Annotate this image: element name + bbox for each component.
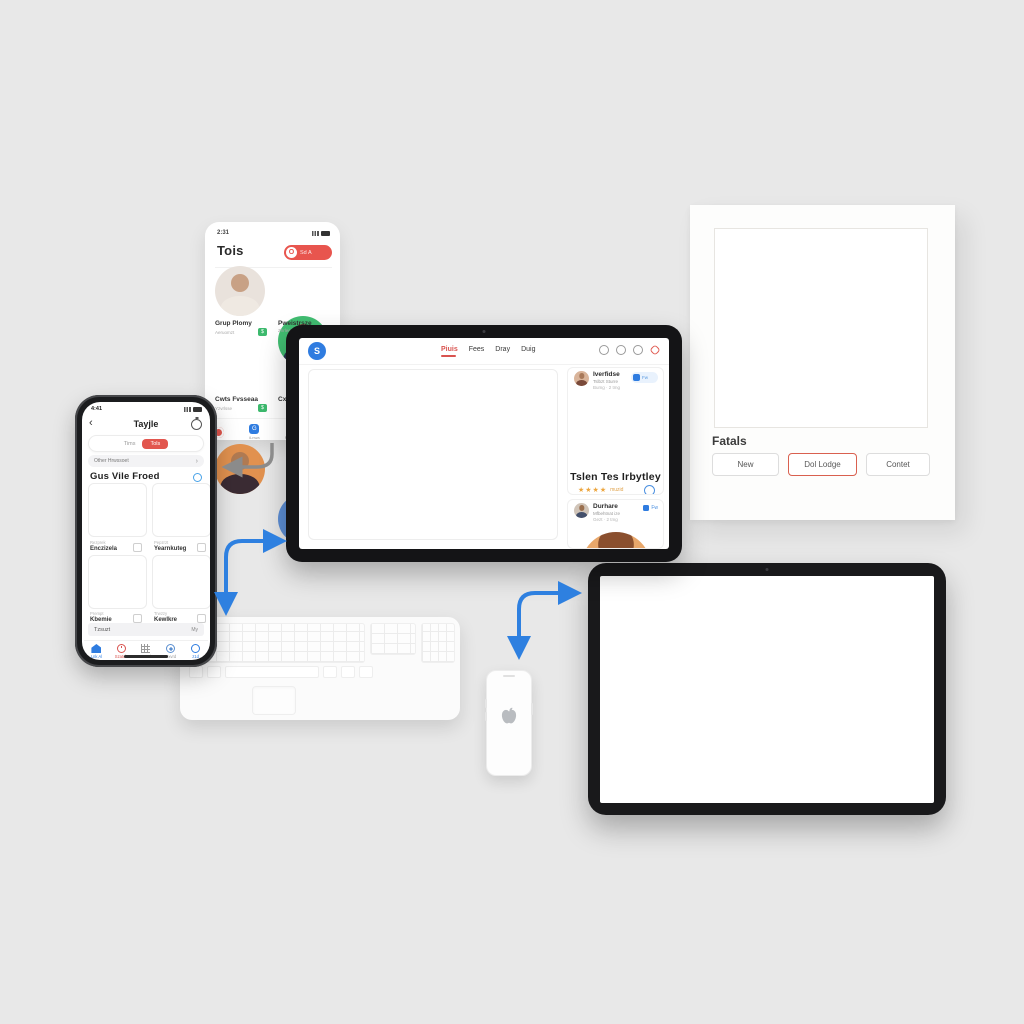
- chevron-right-icon: ›: [196, 458, 198, 465]
- image-placeholder: [714, 228, 928, 428]
- star-rating-icon: ★★★★: [578, 486, 607, 494]
- new-button[interactable]: New: [712, 453, 779, 476]
- add-contact-label: Sd A: [300, 250, 312, 256]
- design-flow-collage: 2:31 Tois O Sd A Grup Plomy Aeruomzt $ P…: [0, 0, 1024, 1024]
- chat-icon: G: [249, 424, 259, 434]
- list-row-label: Other Hrwssoet: [94, 458, 129, 464]
- tablet-toolbar-icons: [599, 345, 660, 355]
- money-badge-icon: $: [258, 328, 267, 336]
- clock-icon: [117, 644, 126, 653]
- status-icons: [312, 231, 330, 236]
- battery-icon: [321, 231, 330, 236]
- record-icon: O: [286, 247, 297, 258]
- contact-cell-3[interactable]: Cwts Fvsseaa Yzvrlsse $: [215, 396, 267, 412]
- grid-card-2[interactable]: [152, 483, 210, 537]
- sidebar-profile-card: Durhare Mfbehtnat ize Gezt · 2 tmg Fw: [567, 499, 664, 549]
- signal-icon: [184, 407, 191, 412]
- footer-action: My: [191, 627, 198, 633]
- grid-icon: [141, 644, 150, 653]
- partial-avatar: [581, 532, 651, 549]
- spacebar-key[interactable]: [225, 666, 319, 678]
- keyboard-numpad[interactable]: [421, 623, 455, 663]
- tab-label: z1d: [192, 654, 199, 659]
- tablet-mockup: S Piuis Fees Dray Duig Iverfidse Tslbzt …: [286, 325, 682, 562]
- key[interactable]: [323, 666, 337, 678]
- keyboard-mockup[interactable]: [180, 617, 460, 720]
- camera-icon: [483, 330, 486, 333]
- phone-mockup: 4:41 ‹ Tayjle Tims Tols Other Hrwssoet ›…: [75, 395, 217, 667]
- speaker-slot: [503, 675, 515, 677]
- tab-chat[interactable]: G iLnwa: [249, 424, 259, 440]
- key[interactable]: [207, 666, 221, 678]
- signal-icon: [312, 231, 319, 236]
- status-time: 4:41: [91, 406, 102, 412]
- tab-label: Lnk Al: [91, 654, 102, 659]
- keyboard-nav-keys[interactable]: [370, 623, 416, 655]
- follow-icon: [633, 374, 640, 381]
- sync-icon[interactable]: [193, 473, 202, 482]
- key[interactable]: [341, 666, 355, 678]
- grid-card-4[interactable]: [152, 555, 210, 609]
- home-indicator: [124, 655, 168, 658]
- file-icon: [197, 543, 206, 552]
- contact-name: Grup Plomy: [215, 320, 267, 327]
- segmented-control: Tims Tols: [88, 435, 204, 452]
- status-time: 2:31: [217, 230, 229, 236]
- contact-cell-1[interactable]: Grup Plomy Aeruomzt $: [215, 320, 267, 336]
- rating-text: muzid: [610, 487, 623, 493]
- key[interactable]: [359, 666, 373, 678]
- avatar[interactable]: [574, 503, 589, 518]
- share-icon[interactable]: [644, 485, 655, 495]
- segment-tims[interactable]: Tims: [124, 441, 136, 447]
- grid-card-3[interactable]: [88, 555, 147, 609]
- grid-card-1-caption: Rezprek Enczizela: [90, 540, 143, 552]
- grid-card-2-caption: Pepzrzt Yearnkuteg: [154, 540, 207, 552]
- form-buttons: New Dol Lodge Contet: [712, 453, 930, 476]
- add-contact-button[interactable]: O Sd A: [284, 245, 332, 260]
- contact-subtitle: Yzvrlsse: [215, 406, 232, 411]
- battery-icon: [193, 407, 202, 412]
- tab-label: iLnwa: [249, 435, 259, 440]
- connector-miniphone-tablet2: [519, 593, 578, 656]
- grid-card-3-caption: Prempt Kbemie: [90, 611, 143, 623]
- globe-icon[interactable]: [616, 345, 626, 355]
- contet-button[interactable]: Contet: [866, 453, 930, 476]
- featured-name: Tslen Tes Irbytley: [568, 471, 663, 483]
- profile-name: Iverfidse: [593, 371, 620, 378]
- profile-meta: Bumg · 2 tmg: [593, 385, 620, 390]
- follow-icon: [643, 505, 649, 511]
- footer-bar[interactable]: Tzsuzt My: [88, 623, 204, 636]
- list-row-other[interactable]: Other Hrwssoet ›: [88, 455, 204, 467]
- profile-name: Durhare: [593, 503, 618, 510]
- paper-form-mockup: Fatals New Dol Lodge Contet: [690, 205, 955, 520]
- avatar[interactable]: [574, 371, 589, 386]
- key[interactable]: [189, 666, 203, 678]
- tablet-screen: S Piuis Fees Dray Duig Iverfidse Tslbzt …: [299, 338, 669, 549]
- profile-meta: Gezt · 2 tmg: [593, 517, 618, 522]
- phone-navbar: ‹ Tayjle: [82, 417, 210, 431]
- file-icon: [133, 543, 142, 552]
- profile-subtitle: Mfbehtnat ize: [593, 511, 620, 516]
- app-logo-icon[interactable]: S: [308, 342, 326, 360]
- contact-card-statusbar: 2:31: [217, 229, 330, 237]
- follow-toggle[interactable]: Fw: [631, 372, 658, 383]
- nav-item-fees[interactable]: Fees: [469, 346, 485, 353]
- section-title: Gus Vile Froed: [90, 471, 160, 482]
- keyboard-bottom-row[interactable]: [189, 666, 373, 677]
- blank-tablet-mockup: [588, 563, 946, 815]
- phone-screen: 4:41 ‹ Tayjle Tims Tols Other Hrwssoet ›…: [82, 402, 210, 660]
- contact-card-title: Tois: [217, 243, 244, 258]
- gem-icon[interactable]: [649, 344, 660, 355]
- profile-subtitle: Tslbzt Sturre: [593, 379, 618, 384]
- blank-screen: [600, 576, 934, 803]
- clock-icon[interactable]: [633, 345, 643, 355]
- tab-profile[interactable]: z1d: [183, 641, 208, 660]
- grid-card-1[interactable]: [88, 483, 147, 537]
- form-label: Fatals: [712, 434, 747, 448]
- sidebar-featured-card: Iverfidse Tslbzt Sturre Bumg · 2 tmg Fw …: [567, 367, 664, 495]
- footer-label: Tzsuzt: [94, 627, 110, 633]
- power-button: [531, 703, 533, 715]
- profile-icon: [191, 644, 200, 653]
- grid-card-4-caption: Trwzzy Kewlkre: [154, 611, 207, 623]
- contact-subtitle: Aeruomzt: [215, 330, 234, 335]
- mini-phone-back: [486, 670, 532, 776]
- phone-statusbar: 4:41: [91, 405, 202, 413]
- trackpad[interactable]: [252, 686, 296, 715]
- follow-label: Fw: [651, 505, 658, 511]
- segment-tols[interactable]: Tols: [142, 439, 168, 449]
- camera-icon: [766, 568, 769, 571]
- tab-home[interactable]: Lnk Al: [84, 641, 109, 660]
- contact-avatar-3[interactable]: [215, 444, 265, 494]
- rating-row: ★★★★ muzid: [578, 486, 623, 494]
- main-content-panel: [308, 369, 558, 540]
- contact-avatar-1[interactable]: [215, 266, 265, 316]
- apple-logo-icon: [502, 707, 517, 730]
- nav-item-duig[interactable]: Duig: [521, 346, 535, 353]
- nav-item-piuis[interactable]: Piuis: [441, 346, 458, 353]
- money-badge-icon: $: [258, 404, 267, 412]
- divider: [299, 364, 669, 365]
- volume-button: [485, 699, 487, 708]
- file-icon: [197, 614, 206, 623]
- timer-icon[interactable]: [191, 419, 202, 430]
- home-icon: [91, 644, 101, 653]
- user-icon[interactable]: [599, 345, 609, 355]
- tablet-nav: Piuis Fees Dray Duig: [441, 346, 535, 353]
- connector-phone-keyboard-tablet: [226, 541, 283, 612]
- contact-name: Cwts Fvsseaa: [215, 396, 267, 403]
- file-icon: [133, 614, 142, 623]
- volume-button: [485, 712, 487, 721]
- compass-icon: [166, 644, 175, 653]
- follow-label: Fw: [642, 375, 648, 380]
- dol-lodge-button[interactable]: Dol Lodge: [788, 453, 857, 476]
- nav-item-dray[interactable]: Dray: [495, 346, 510, 353]
- follow-action[interactable]: Fw: [643, 505, 658, 511]
